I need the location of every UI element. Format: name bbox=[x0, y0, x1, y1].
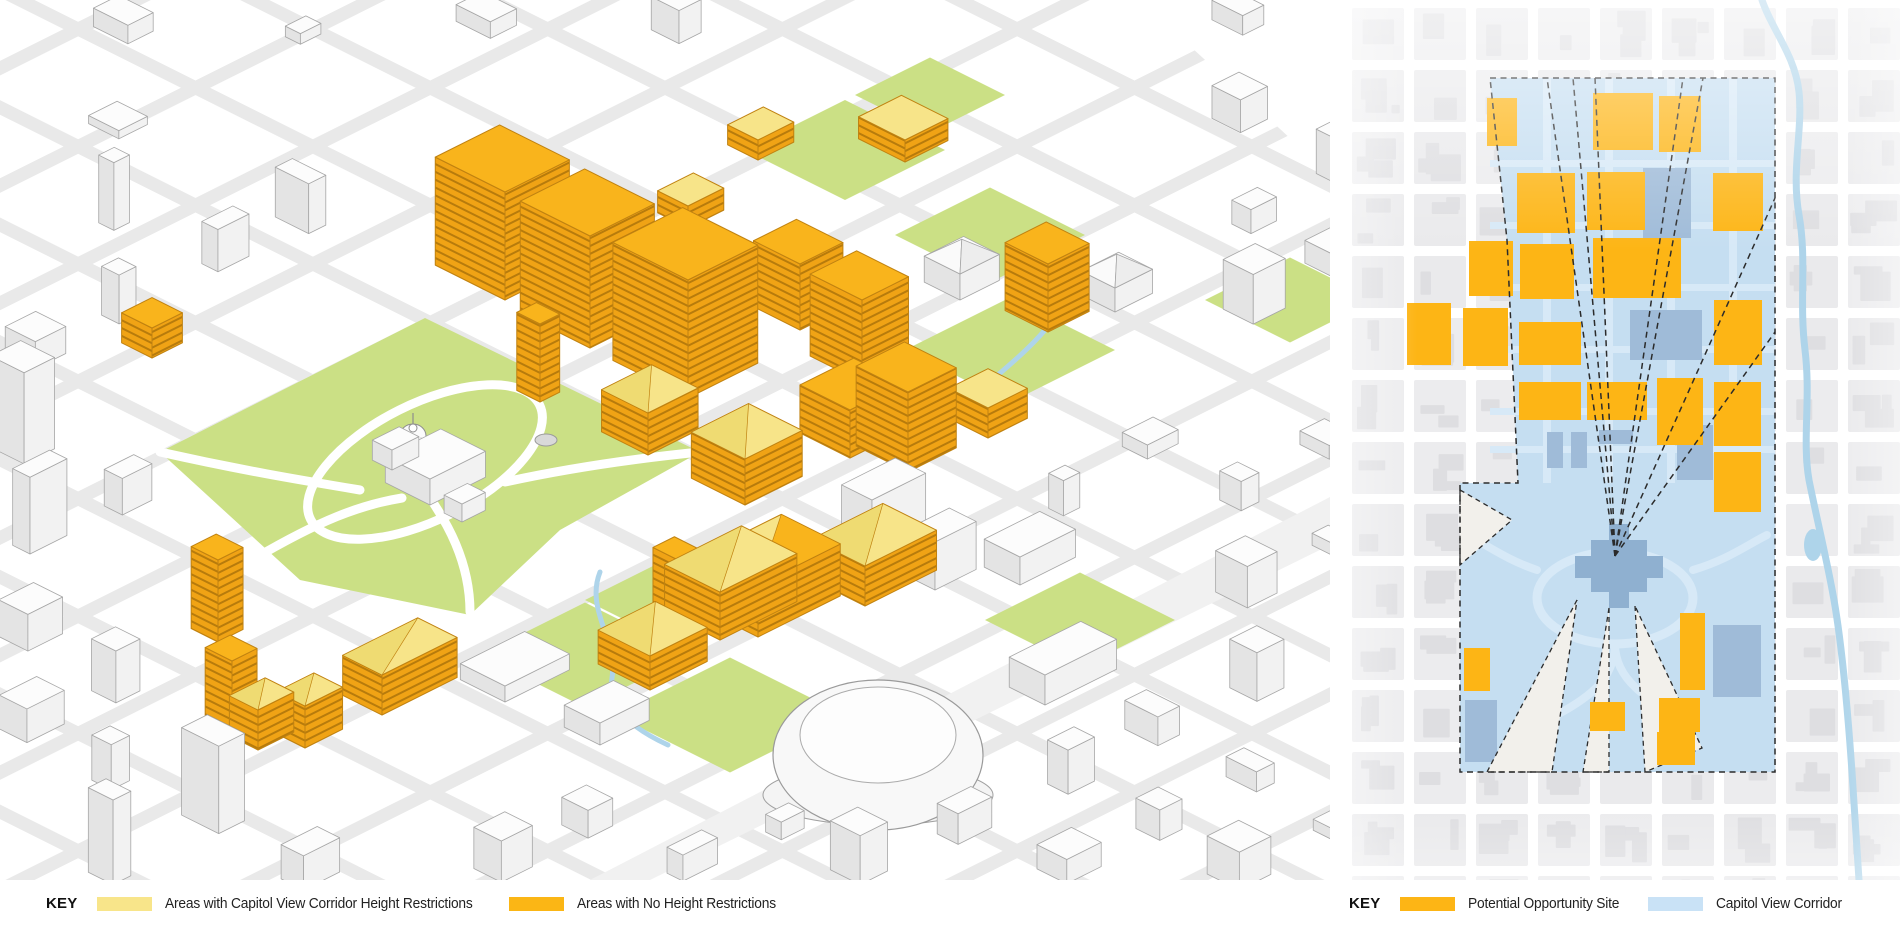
panel-gutter bbox=[1330, 0, 1347, 880]
opportunity-site bbox=[1463, 308, 1508, 366]
plan-map-drawing bbox=[1347, 0, 1900, 880]
opportunity-site bbox=[1519, 322, 1581, 365]
opportunity-site bbox=[1590, 702, 1625, 731]
plan-map-panel bbox=[1347, 0, 1900, 880]
legend-item-left-1: Areas with No Height Restrictions bbox=[509, 896, 786, 912]
opportunity-site bbox=[1714, 452, 1761, 512]
legend-label: Areas with No Height Restrictions bbox=[577, 896, 776, 912]
legend-label: Capitol View Corridor bbox=[1716, 896, 1842, 912]
opportunity-site bbox=[1519, 382, 1581, 420]
capitol-footprint bbox=[1609, 524, 1629, 608]
legend-bar: KEYAreas with Capitol View Corridor Heig… bbox=[0, 880, 1900, 927]
legend-swatch bbox=[1648, 897, 1703, 911]
legend-swatch bbox=[1400, 897, 1455, 911]
legend-swatch bbox=[97, 897, 152, 911]
legend-label: Potential Opportunity Site bbox=[1468, 896, 1619, 912]
opportunity-site bbox=[1714, 300, 1762, 365]
legend-item-right-0: Potential Opportunity Site bbox=[1400, 896, 1627, 912]
legend-right: KEYPotential Opportunity SiteCapitol Vie… bbox=[1349, 880, 1868, 927]
opportunity-site bbox=[1659, 698, 1700, 732]
capitol-view-corridor-diagram: KEYAreas with Capitol View Corridor Heig… bbox=[0, 0, 1900, 927]
legend-label: Areas with Capitol View Corridor Height … bbox=[165, 896, 473, 912]
legend-left: KEYAreas with Capitol View Corridor Heig… bbox=[46, 880, 807, 927]
opportunity-site bbox=[1520, 244, 1574, 299]
opportunity-site bbox=[1680, 613, 1705, 690]
legend-item-left-0: Areas with Capitol View Corridor Height … bbox=[97, 896, 489, 912]
opportunity-site bbox=[1657, 732, 1695, 765]
opportunity-site bbox=[1587, 382, 1647, 420]
opportunity-site bbox=[1464, 648, 1490, 691]
opportunity-site bbox=[1714, 382, 1761, 446]
axonometric-city-drawing bbox=[0, 0, 1330, 880]
legend-swatch bbox=[509, 897, 564, 911]
key-title-left: KEY bbox=[46, 895, 77, 912]
key-title-right: KEY bbox=[1349, 895, 1380, 912]
legend-item-right-1: Capitol View Corridor bbox=[1648, 896, 1849, 912]
axonometric-city-panel bbox=[0, 0, 1330, 880]
